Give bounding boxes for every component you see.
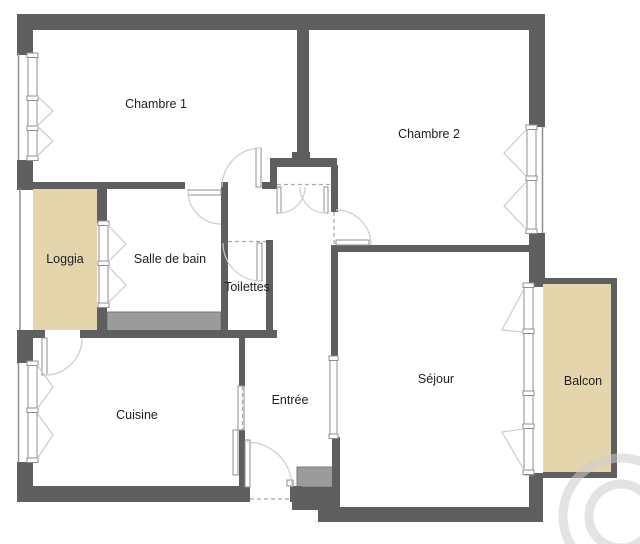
- room-label-entree: Entrée: [272, 393, 309, 407]
- frame-nub: [98, 303, 109, 308]
- door-leaf-chambre2: [336, 240, 369, 245]
- door-leaf-toilettes: [257, 243, 262, 281]
- wall-segment: [332, 437, 340, 510]
- wall-segment: [17, 14, 545, 30]
- frame-nub: [98, 221, 109, 226]
- frame-nub: [27, 458, 38, 463]
- wall-segment: [331, 245, 530, 252]
- frame-nub: [27, 126, 38, 131]
- wall-segment: [297, 30, 309, 154]
- entry-step-block: [297, 467, 333, 487]
- bathtub: [107, 312, 221, 332]
- frame-nub: [27, 53, 38, 58]
- room-label-sejour: Séjour: [418, 372, 454, 386]
- balcon-railing: [543, 278, 617, 284]
- frame-nub: [523, 424, 534, 429]
- wall-segment: [270, 158, 337, 167]
- wall-segment: [80, 330, 277, 338]
- room-label-toilettes: Toilettes: [224, 280, 270, 294]
- room-label-balcon: Balcon: [564, 374, 602, 388]
- wall-segment: [239, 338, 245, 386]
- balcon-railing: [611, 278, 617, 478]
- wall-segment: [239, 430, 245, 487]
- frame-nub: [98, 261, 109, 266]
- frame-nub: [526, 229, 537, 234]
- frame-nub: [523, 283, 534, 288]
- wall-segment: [17, 486, 250, 502]
- door-leaf-cuisine: [233, 430, 238, 475]
- wall-segment: [262, 182, 277, 189]
- room-label-chambre2: Chambre 2: [398, 127, 460, 141]
- door-leaf-salle-de-bain: [188, 190, 221, 195]
- frame-nub: [523, 329, 534, 334]
- wall-segment: [33, 182, 185, 189]
- window-balcon-french-door: [524, 285, 533, 475]
- room-label-chambre1: Chambre 1: [125, 97, 187, 111]
- room-label-cuisine: Cuisine: [116, 408, 158, 422]
- sejour-doorway-panel: [330, 358, 337, 438]
- frame-nub: [27, 96, 38, 101]
- wall-segment: [529, 233, 545, 278]
- frame-nub: [329, 356, 338, 361]
- wall-segment: [17, 30, 33, 55]
- frame-nub: [526, 176, 537, 181]
- wall-segment: [17, 160, 33, 190]
- room-label-salle-de-bain: Salle de bain: [134, 252, 206, 266]
- door-leaf-chambre1: [256, 148, 261, 187]
- window-chambre1: [28, 55, 37, 160]
- door-leaf-front-door: [245, 440, 250, 487]
- wall-segment: [318, 507, 543, 522]
- wall-segment: [17, 330, 45, 338]
- frame-nub: [27, 156, 38, 161]
- room-label-loggia: Loggia: [46, 252, 84, 266]
- frame-nub: [329, 434, 338, 439]
- closet-door-leaf-left: [277, 187, 281, 213]
- wall-segment: [529, 30, 545, 127]
- frame-nub: [526, 125, 537, 130]
- wall-segment: [221, 182, 228, 330]
- frame-nub: [523, 391, 534, 396]
- floor-plan: Chambre 1 Chambre 2 Salle de bain Toilet…: [0, 0, 640, 544]
- closet-door-leaf-right: [324, 187, 328, 213]
- frame-nub: [523, 470, 534, 475]
- door-leaf-loggia-cuisine: [42, 338, 47, 375]
- wall-segment: [331, 165, 338, 212]
- wall-segment: [97, 188, 107, 223]
- frame-nub: [27, 408, 38, 413]
- wall-segment: [331, 250, 338, 358]
- frame-nub: [27, 361, 38, 366]
